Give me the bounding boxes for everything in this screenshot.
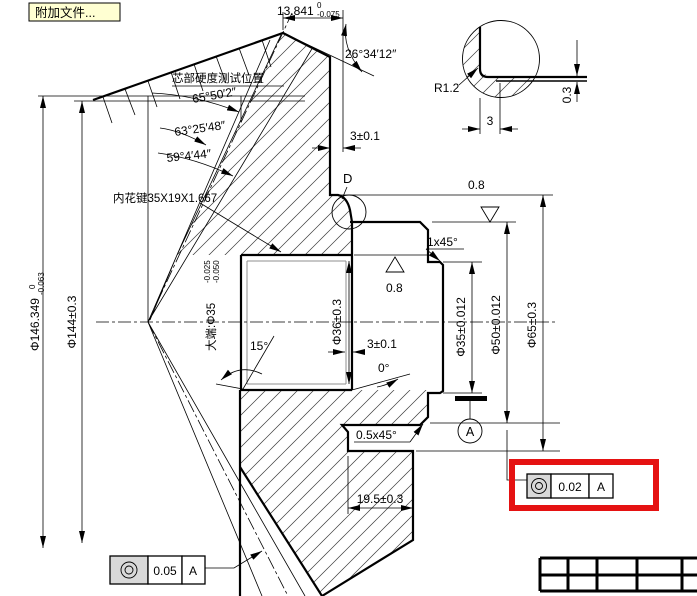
detail-d-label: D bbox=[343, 171, 352, 186]
angle-pitch-cone: 63°25′48″ bbox=[173, 118, 227, 139]
attach-file-button[interactable]: 附加文件... bbox=[29, 3, 120, 21]
dim-hub-length: 19.5±0.3 bbox=[357, 492, 404, 506]
angle-spline-taper: 15° bbox=[250, 339, 268, 353]
geo-tol-005-value: 0.05 bbox=[153, 564, 177, 578]
roughness-hub-face-value: 0.8 bbox=[468, 178, 485, 192]
angle-face-cone: 65°50′2″ bbox=[191, 84, 238, 106]
dim-mounting-distance: 13.841 bbox=[277, 4, 314, 18]
dim-back-diameter: Φ144±0.3 bbox=[65, 295, 79, 348]
dim-rim-width: 3±0.1 bbox=[350, 129, 380, 143]
geo-tolerance-frame-002[interactable]: 0.02 A bbox=[507, 430, 656, 508]
dim-mounting-distance-upper: 0 bbox=[317, 1, 322, 10]
attach-file-button-label: 附加文件... bbox=[35, 5, 95, 20]
dim-hub-chamfer: 1x45° bbox=[427, 235, 458, 249]
angle-root-cone: 59°4′44″ bbox=[166, 146, 213, 165]
dim-bore-big-end-lower: -0.050 bbox=[212, 260, 221, 283]
geo-tol-005-datum: A bbox=[189, 564, 197, 578]
angle-back: 26°34′12″ bbox=[345, 47, 397, 61]
dim-spline-od: Φ36±0.3 bbox=[330, 299, 344, 346]
dim-outer-diameter-lower: -0.063 bbox=[37, 272, 46, 295]
dim-outer-diameter-upper: 0 bbox=[28, 284, 37, 289]
datum-a-label: A bbox=[466, 425, 475, 439]
geo-tol-002-value: 0.02 bbox=[558, 480, 582, 494]
dim-groove-width: 3±0.1 bbox=[367, 337, 397, 351]
dim-journal-diameter: Φ35±0.012 bbox=[454, 297, 468, 357]
label-spline: 内花键35X19X1.667 bbox=[113, 191, 217, 205]
dim-outer-diameter: Φ146.349 bbox=[28, 298, 42, 351]
dim-flange-diameter: Φ65±0.3 bbox=[525, 302, 539, 349]
label-core-hardness: 芯部硬度测试位置 bbox=[172, 71, 264, 85]
dim-detail-radius: R1.2 bbox=[434, 81, 460, 95]
dim-mounting-distance-lower: -0.075 bbox=[317, 10, 340, 19]
roughness-bore-face-value: 0.8 bbox=[386, 281, 403, 295]
dim-detail-width: 3 bbox=[487, 114, 494, 128]
dim-bore-big-end-upper: -0.025 bbox=[203, 260, 212, 283]
detail-view: R1.2 3 0.3 bbox=[434, 20, 587, 134]
dim-lower-chamfer: 0.5x45° bbox=[356, 428, 397, 442]
title-block-table bbox=[540, 558, 697, 591]
dim-bore-big-end: 大端:Φ35 bbox=[204, 303, 218, 351]
drawing-canvas: D 13 bbox=[0, 0, 697, 596]
geo-tol-002-datum: A bbox=[597, 480, 605, 494]
roughness-triangle-icon bbox=[386, 257, 404, 272]
dim-detail-step: 0.3 bbox=[560, 86, 574, 103]
roughness-triangle-icon bbox=[481, 207, 499, 222]
datum-a-symbol: A bbox=[455, 396, 487, 443]
angle-spline-end: 0° bbox=[378, 361, 390, 375]
dim-hub-diameter: Φ50±0.012 bbox=[489, 295, 503, 355]
